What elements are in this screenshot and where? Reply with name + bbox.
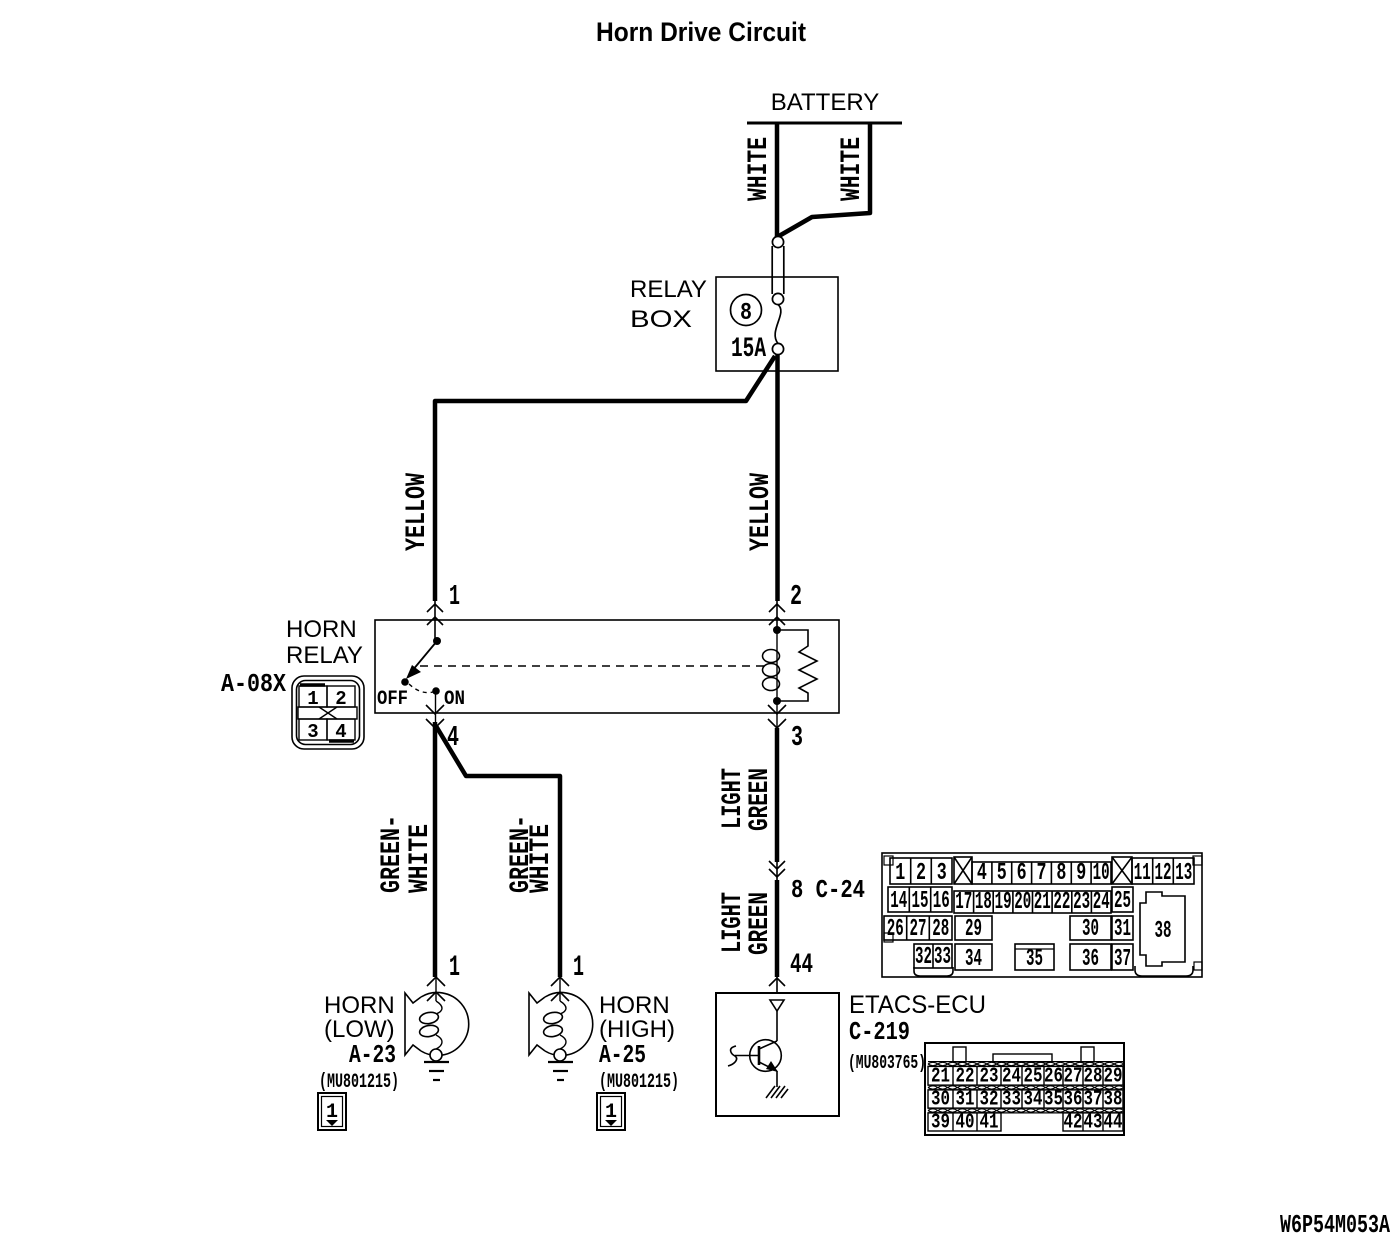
svg-text:WHITE: WHITE: [744, 137, 775, 201]
svg-text:36: 36: [1064, 1089, 1083, 1112]
svg-text:WHITE: WHITE: [837, 137, 868, 201]
svg-text:1: 1: [449, 580, 460, 613]
svg-text:22: 22: [1053, 889, 1070, 916]
svg-text:8: 8: [740, 300, 752, 327]
svg-text:42: 42: [1064, 1112, 1083, 1135]
svg-text:15A: 15A: [731, 334, 766, 365]
svg-text:39: 39: [931, 1112, 950, 1135]
svg-text:BATTERY: BATTERY: [771, 89, 879, 116]
svg-text:30: 30: [931, 1089, 950, 1112]
svg-text:37: 37: [1084, 1089, 1103, 1112]
svg-text:C-219: C-219: [849, 1017, 910, 1047]
svg-text:1: 1: [307, 688, 318, 710]
svg-text:9: 9: [1076, 860, 1086, 887]
svg-text:WHITE: WHITE: [526, 824, 557, 893]
svg-text:(MU801215): (MU801215): [599, 1071, 679, 1094]
svg-text:(MU803765): (MU803765): [848, 1052, 926, 1074]
svg-text:11: 11: [1134, 860, 1151, 887]
svg-text:HORN: HORN: [599, 992, 670, 1019]
svg-text:25: 25: [1024, 1066, 1043, 1089]
svg-text:33: 33: [1002, 1089, 1021, 1112]
svg-text:ETACS-ECU: ETACS-ECU: [849, 991, 986, 1019]
svg-text:3: 3: [791, 721, 803, 754]
svg-text:A-08X: A-08X: [221, 669, 286, 699]
svg-text:27: 27: [910, 916, 927, 943]
svg-text:37: 37: [1114, 946, 1131, 973]
svg-text:8: 8: [1056, 860, 1066, 887]
svg-text:28: 28: [932, 916, 949, 943]
svg-text:19: 19: [995, 889, 1012, 916]
svg-text:26: 26: [887, 916, 904, 943]
svg-text:GREEN: GREEN: [745, 892, 776, 955]
svg-text:29: 29: [965, 916, 982, 943]
svg-text:40: 40: [956, 1112, 975, 1135]
svg-text:HORN: HORN: [324, 992, 395, 1019]
svg-text:21: 21: [931, 1066, 950, 1089]
svg-text:2: 2: [790, 580, 802, 613]
svg-text:36: 36: [1082, 946, 1099, 973]
svg-text:4: 4: [335, 721, 346, 743]
svg-text:(LOW): (LOW): [324, 1016, 395, 1043]
svg-text:24: 24: [1093, 889, 1110, 916]
svg-text:14: 14: [890, 888, 907, 915]
svg-text:13: 13: [1175, 860, 1192, 887]
svg-text:7: 7: [1037, 860, 1047, 887]
svg-text:A-23: A-23: [349, 1040, 396, 1070]
svg-text:2: 2: [916, 860, 926, 887]
svg-text:6: 6: [1017, 860, 1027, 887]
svg-text:10: 10: [1093, 860, 1110, 887]
svg-text:17: 17: [955, 889, 972, 916]
svg-text:31: 31: [956, 1089, 975, 1112]
svg-text:44: 44: [790, 950, 813, 981]
svg-text:23: 23: [1073, 889, 1090, 916]
svg-text:8 C-24: 8 C-24: [791, 875, 865, 905]
svg-text:12: 12: [1155, 860, 1172, 887]
svg-text:YELLOW: YELLOW: [402, 473, 433, 551]
svg-text:Horn Drive Circuit: Horn Drive Circuit: [596, 17, 806, 47]
svg-text:30: 30: [1082, 916, 1099, 943]
svg-text:20: 20: [1014, 889, 1031, 916]
svg-text:28: 28: [1084, 1066, 1103, 1089]
svg-text:HORN: HORN: [286, 616, 357, 643]
svg-text:BOX: BOX: [630, 306, 692, 333]
svg-text:1: 1: [449, 951, 460, 985]
svg-text:(HIGH): (HIGH): [599, 1016, 675, 1043]
svg-text:16: 16: [933, 888, 950, 915]
svg-text:26: 26: [1044, 1066, 1063, 1089]
svg-text:1: 1: [573, 951, 584, 985]
svg-text:33: 33: [934, 944, 951, 971]
svg-text:OFF: OFF: [377, 688, 408, 711]
svg-text:YELLOW: YELLOW: [746, 473, 777, 551]
svg-text:35: 35: [1026, 946, 1043, 973]
svg-text:22: 22: [956, 1066, 975, 1089]
svg-text:24: 24: [1002, 1066, 1021, 1089]
svg-text:3: 3: [937, 860, 947, 887]
svg-text:GREEN-: GREEN-: [377, 815, 408, 893]
svg-text:WHITE: WHITE: [405, 824, 436, 893]
svg-text:18: 18: [975, 889, 992, 916]
svg-text:25: 25: [1114, 888, 1131, 915]
svg-text:43: 43: [1084, 1112, 1103, 1135]
svg-text:29: 29: [1104, 1066, 1123, 1089]
svg-text:(MU801215): (MU801215): [319, 1071, 399, 1094]
svg-text:2: 2: [335, 688, 346, 710]
svg-text:41: 41: [980, 1112, 999, 1135]
svg-text:A-25: A-25: [599, 1040, 646, 1070]
svg-text:4: 4: [977, 860, 987, 887]
svg-text:38: 38: [1104, 1089, 1123, 1112]
svg-text:27: 27: [1064, 1066, 1083, 1089]
svg-text:34: 34: [1024, 1089, 1043, 1112]
svg-text:15: 15: [912, 888, 929, 915]
svg-text:5: 5: [997, 860, 1007, 887]
svg-text:1: 1: [895, 860, 905, 887]
svg-text:44: 44: [1104, 1112, 1123, 1135]
svg-text:35: 35: [1044, 1089, 1063, 1112]
svg-text:21: 21: [1034, 889, 1051, 916]
svg-text:GREEN: GREEN: [745, 768, 776, 831]
svg-text:RELAY: RELAY: [630, 276, 707, 303]
svg-text:3: 3: [307, 721, 318, 743]
svg-text:34: 34: [965, 946, 982, 973]
svg-text:32: 32: [980, 1089, 999, 1112]
svg-text:32: 32: [915, 944, 932, 971]
svg-text:W6P54M053A: W6P54M053A: [1280, 1210, 1390, 1240]
svg-text:ON: ON: [444, 688, 465, 711]
svg-text:31: 31: [1114, 916, 1131, 943]
svg-text:23: 23: [980, 1066, 999, 1089]
svg-text:38: 38: [1155, 918, 1172, 945]
svg-text:RELAY: RELAY: [286, 642, 363, 669]
